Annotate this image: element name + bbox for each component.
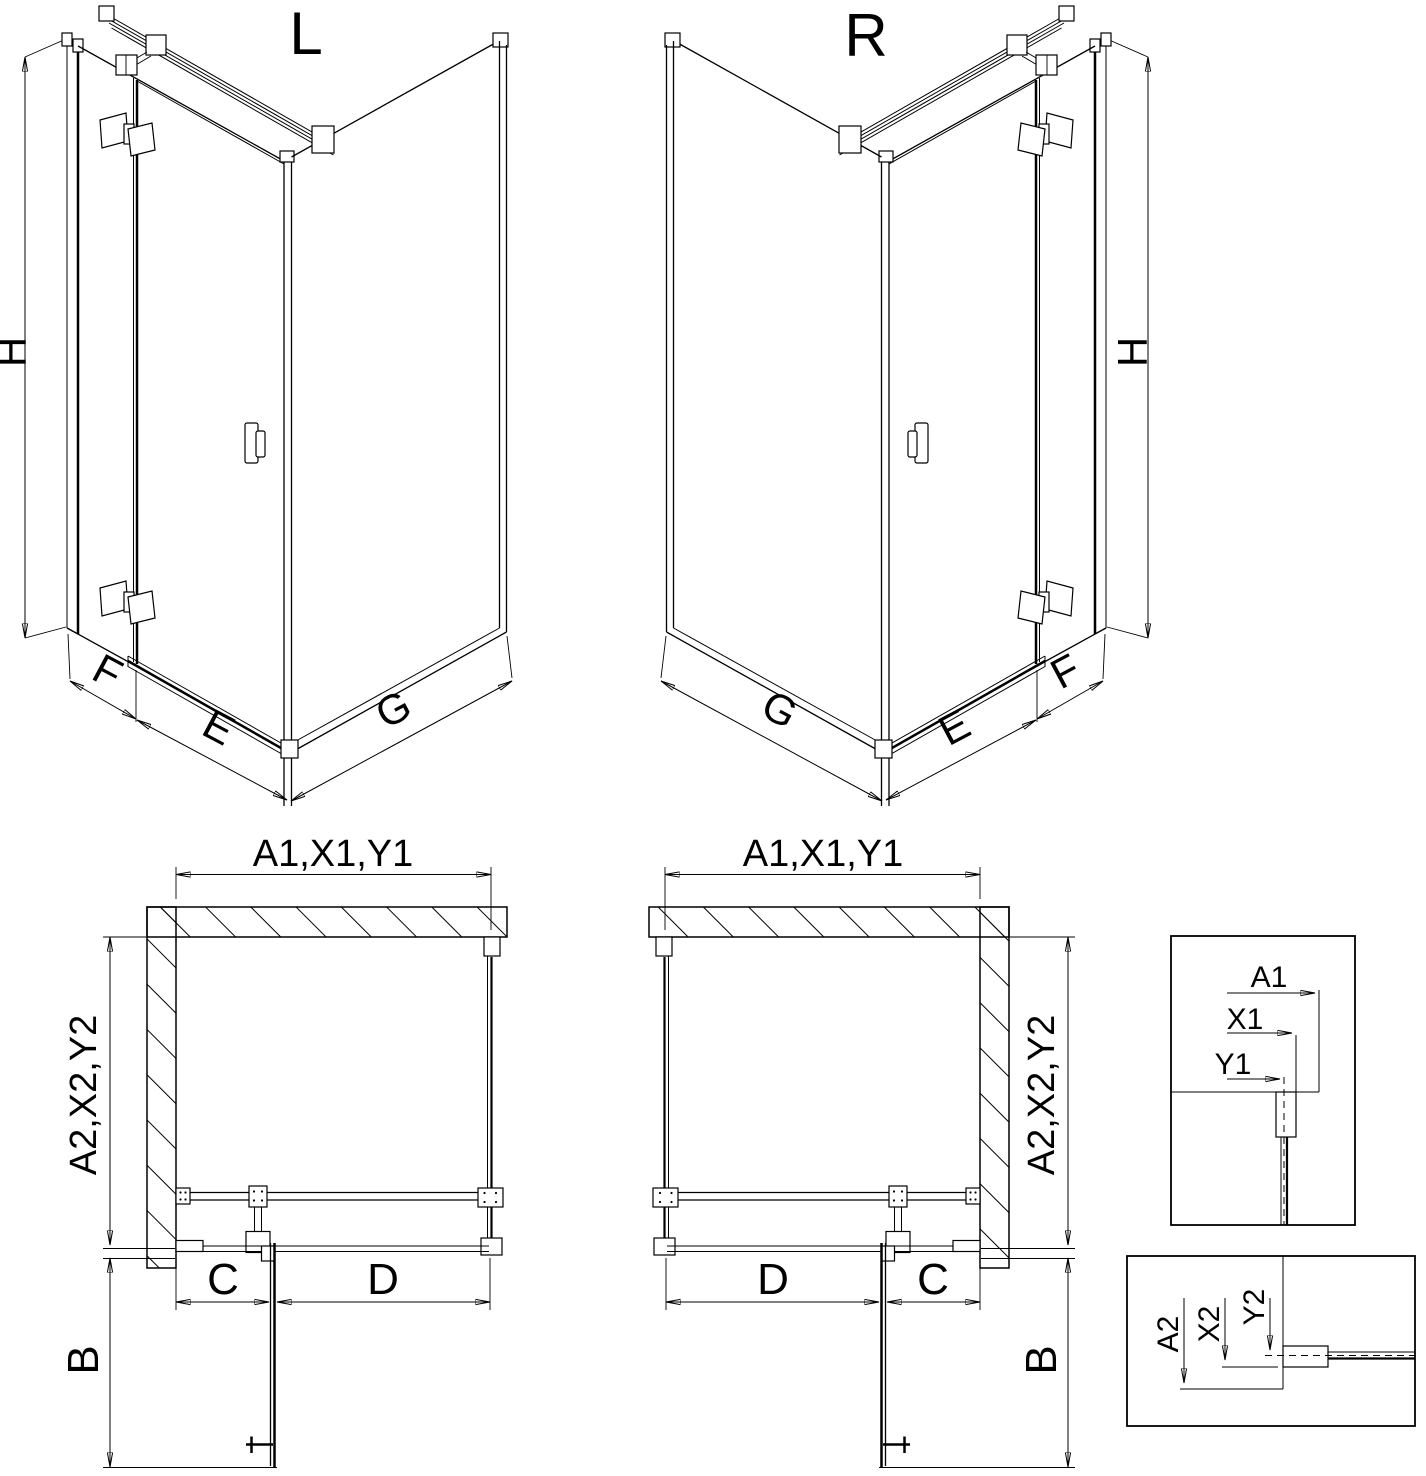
wall-side-right-plan [980, 907, 1009, 1268]
dim-label-return-panel-left: G [368, 681, 419, 738]
variant-label-left: L [289, 0, 322, 67]
variant-label-right: R [844, 2, 887, 69]
plan-view-left: A1,X1,Y1 A2,X2,Y2 C D B [59, 833, 507, 1468]
plan-left-depth-label: A2,X2,Y2 [63, 1015, 105, 1176]
plan-left-fixed-label: C [207, 1255, 239, 1304]
dim-label-side-panel-right: F [1043, 644, 1088, 698]
detail-y2-label: Y2 [1238, 1289, 1271, 1326]
detail-x1-label: X1 [1227, 1003, 1264, 1036]
wall-side-left-plan [147, 907, 176, 1268]
dim-label-height-right: H [1109, 337, 1156, 367]
plan-left-door-label: D [367, 1255, 399, 1304]
wall-top-left-plan [147, 907, 507, 937]
drawing-page: L H F E G R H F E G A1,X1,Y1 A2,X2,Y2 C … [0, 0, 1426, 1476]
dim-label-side-panel-left: F [85, 644, 130, 698]
dim-label-return-panel-right: G [754, 681, 805, 738]
plan-right-depth-label: A2,X2,Y2 [1021, 1015, 1063, 1176]
iso-view-right: R H F E G [661, 2, 1156, 806]
plan-geometry-right [653, 867, 980, 1467]
drawing-canvas: L H F E G R H F E G A1,X1,Y1 A2,X2,Y2 C … [0, 0, 1426, 1476]
plan-left-swing-label: B [59, 1345, 108, 1374]
detail-a2-label: A2 [1152, 1316, 1185, 1353]
detail-depth-inset: A2 X2 Y2 [1127, 1256, 1415, 1426]
iso-view-left: L H F E G [0, 0, 512, 806]
detail-width-inset: A1 X1 Y1 [1171, 936, 1355, 1225]
plan-right-fixed-label: C [917, 1255, 949, 1304]
plan-geometry-left [176, 867, 503, 1467]
wall-top-right-plan [649, 907, 1009, 937]
plan-left-width-label: A1,X1,Y1 [253, 833, 414, 875]
detail-a1-label: A1 [1251, 961, 1288, 994]
detail-y1-label: Y1 [1215, 1048, 1252, 1081]
dim-label-height-left: H [0, 337, 35, 367]
dim-label-door-right: E [931, 700, 978, 755]
plan-right-width-label: A1,X1,Y1 [743, 833, 904, 875]
detail-x2-label: X2 [1193, 1306, 1226, 1343]
plan-right-swing-label: B [1017, 1345, 1066, 1374]
plan-view-right: A1,X1,Y1 A2,X2,Y2 D C B [649, 833, 1075, 1468]
plan-right-door-label: D [757, 1255, 789, 1304]
